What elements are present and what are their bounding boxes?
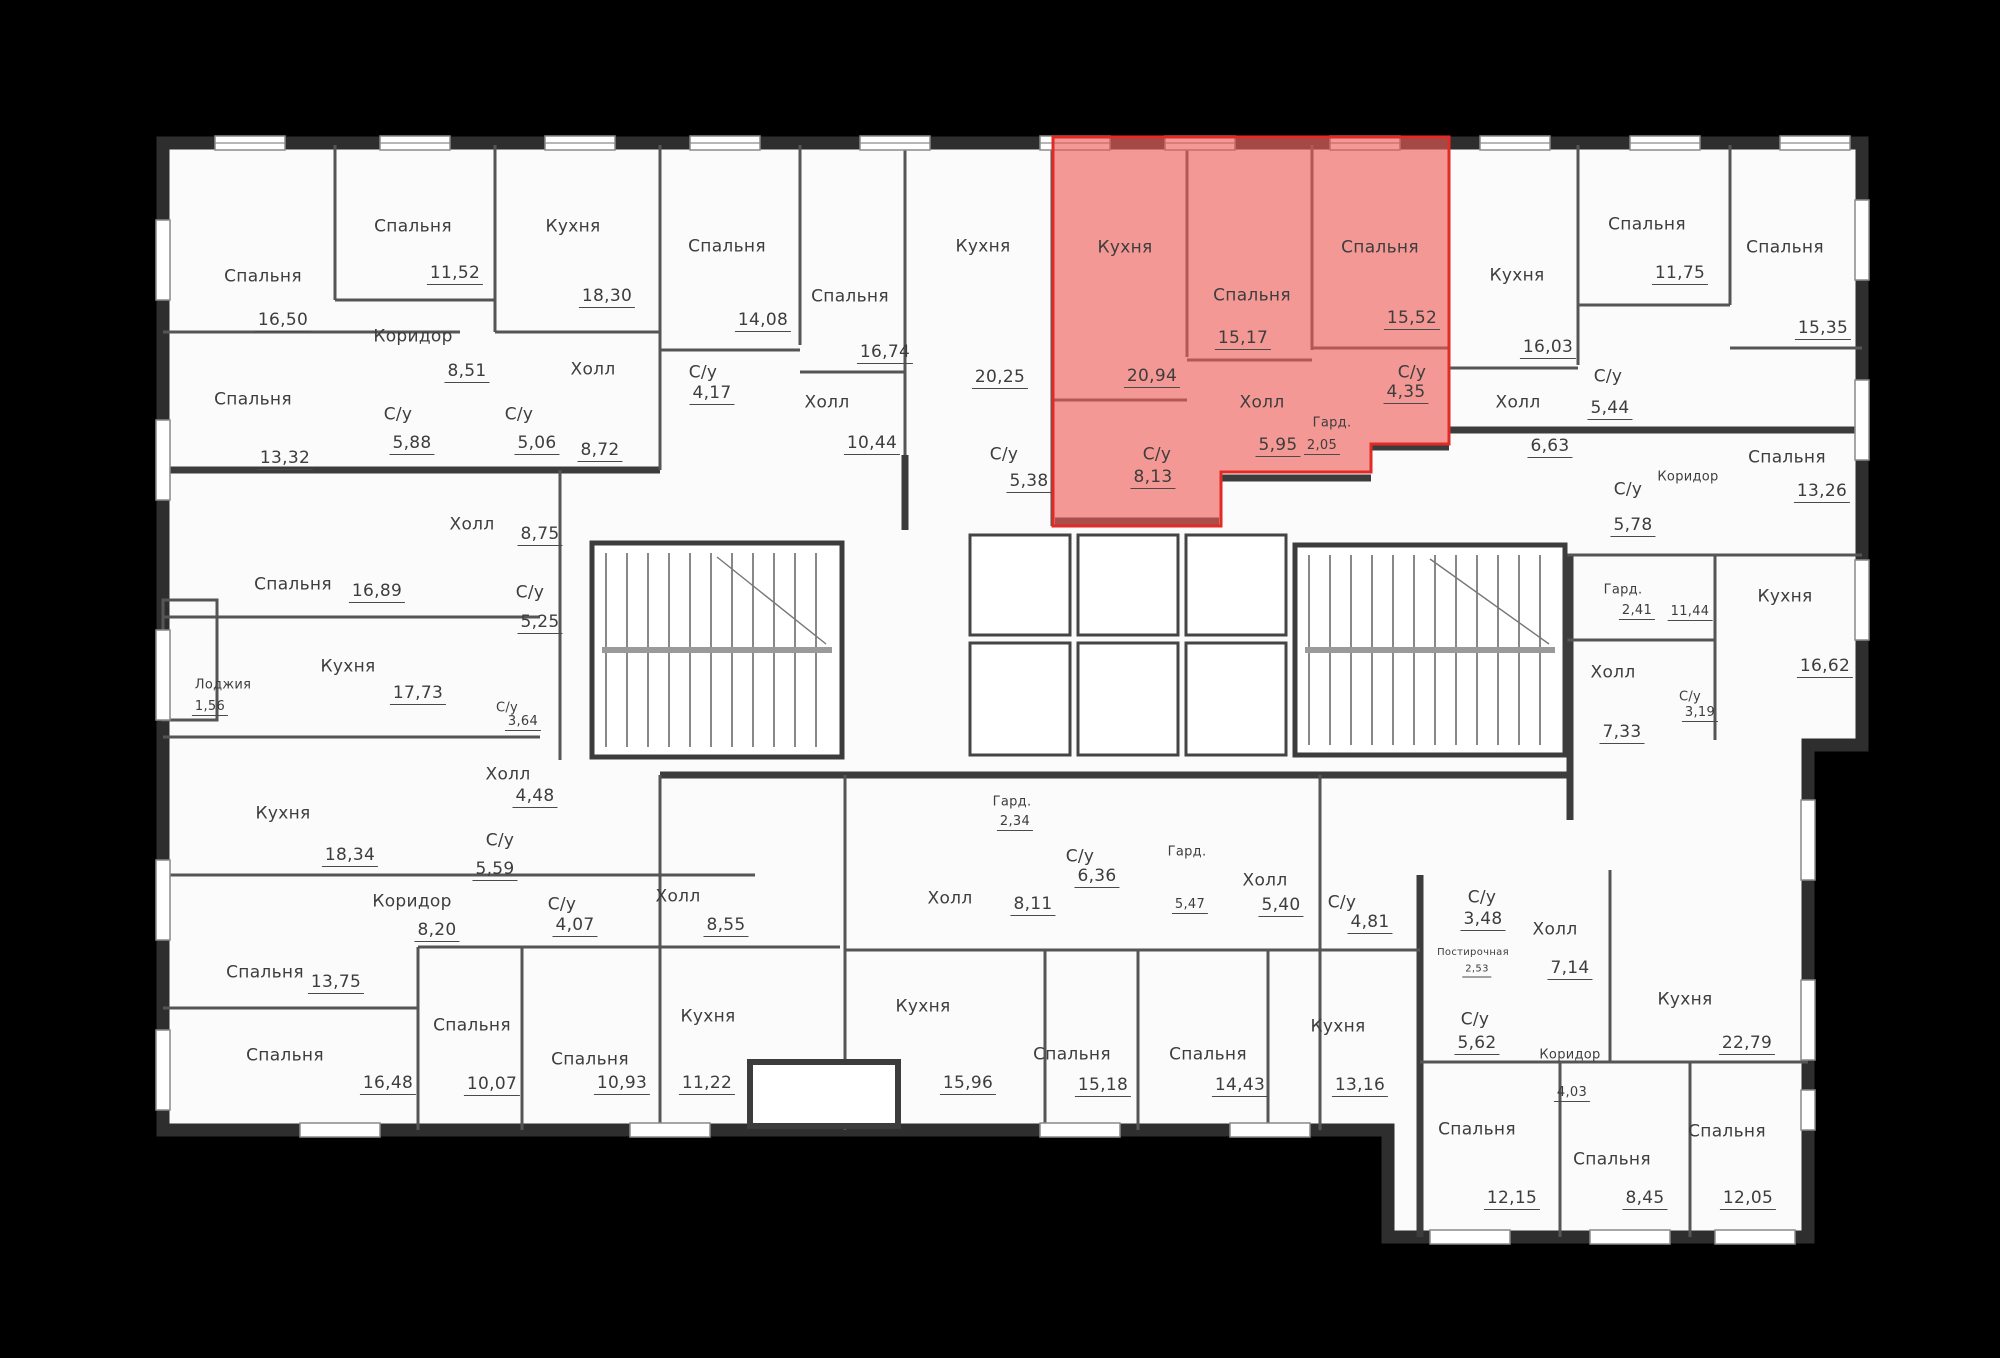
elevator-shafts [970, 535, 1286, 755]
floorplan-screenshot: Спальня16,50Спальня11,52Кухня18,30Коридо… [0, 0, 2000, 1358]
staircase-left [592, 543, 842, 757]
floor-plan-drawing [0, 0, 2000, 1358]
staircase-right [1295, 545, 1565, 755]
entrance-vestibule [750, 1062, 898, 1126]
